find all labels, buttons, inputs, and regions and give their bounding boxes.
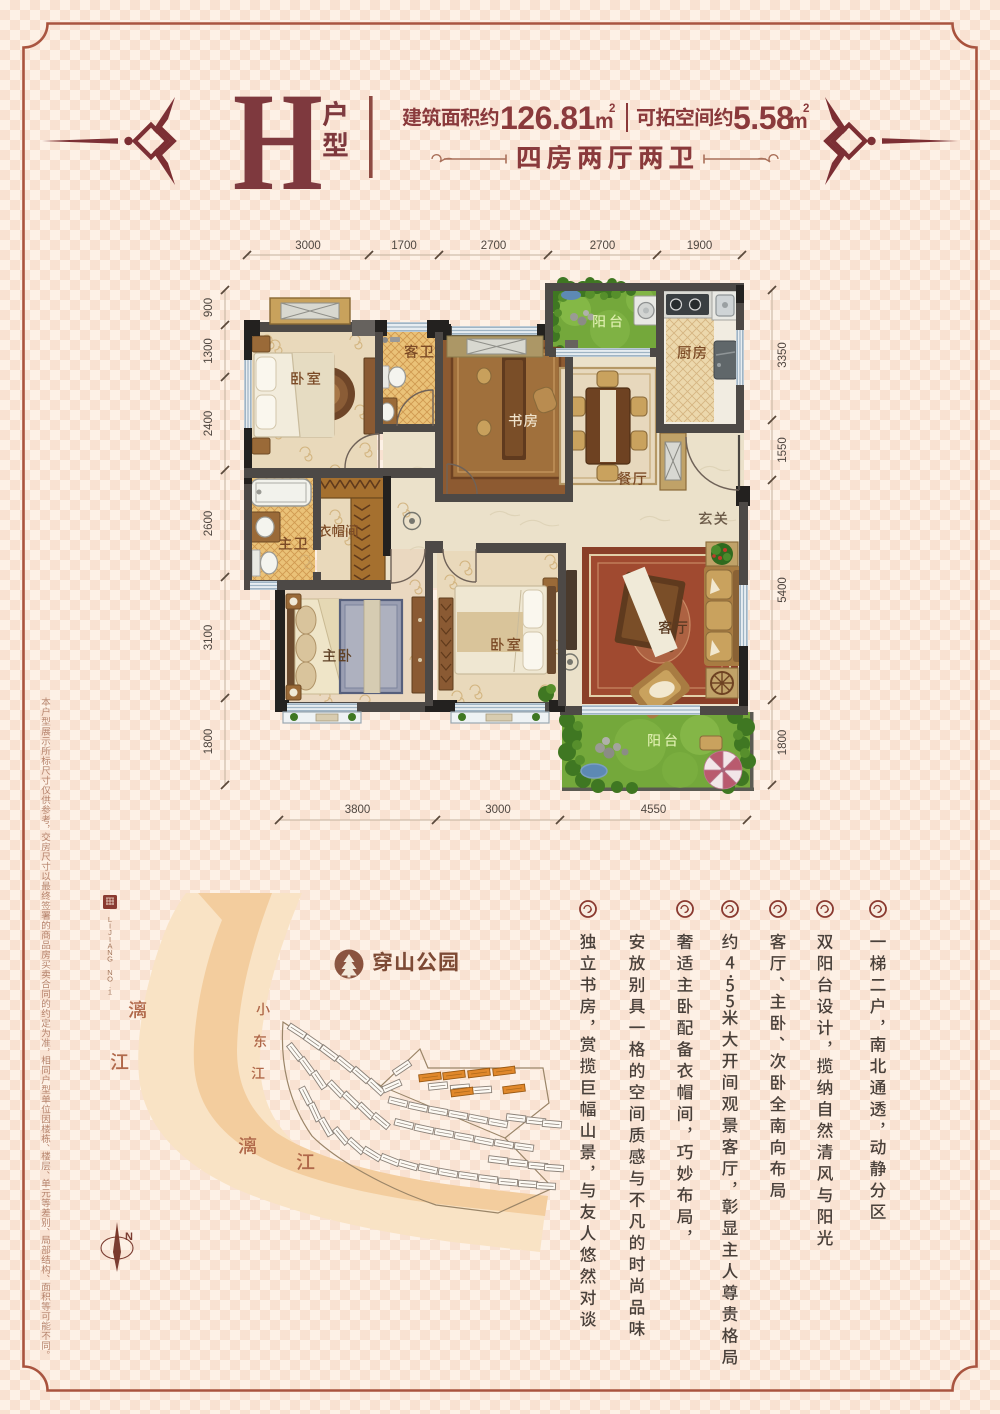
svg-text:N: N [125, 1231, 133, 1243]
svg-text:2: 2 [609, 103, 615, 115]
svg-text:2400: 2400 [203, 411, 215, 437]
svg-text:1300: 1300 [203, 338, 215, 364]
svg-text:3350: 3350 [777, 342, 789, 368]
svg-text:5400: 5400 [777, 577, 789, 603]
svg-text:2700: 2700 [481, 240, 507, 252]
svg-text:5.58: 5.58 [733, 100, 793, 136]
svg-text:1: 1 [108, 988, 112, 997]
svg-text:1800: 1800 [777, 730, 789, 756]
svg-text:1700: 1700 [391, 240, 417, 252]
svg-text:1800: 1800 [203, 729, 215, 755]
svg-text:G: G [107, 955, 113, 964]
svg-text:2600: 2600 [203, 511, 215, 537]
svg-text:2700: 2700 [590, 240, 616, 252]
svg-text:H: H [233, 63, 323, 219]
svg-text:3100: 3100 [203, 625, 215, 651]
svg-text:4550: 4550 [641, 804, 667, 816]
svg-text:1900: 1900 [687, 240, 713, 252]
svg-text:126.81: 126.81 [500, 100, 595, 136]
svg-text:1550: 1550 [777, 437, 789, 463]
svg-text:2: 2 [803, 103, 809, 115]
svg-text:3800: 3800 [345, 804, 371, 816]
svg-text:3000: 3000 [485, 804, 511, 816]
svg-text:900: 900 [203, 298, 215, 317]
svg-text:3000: 3000 [295, 240, 321, 252]
